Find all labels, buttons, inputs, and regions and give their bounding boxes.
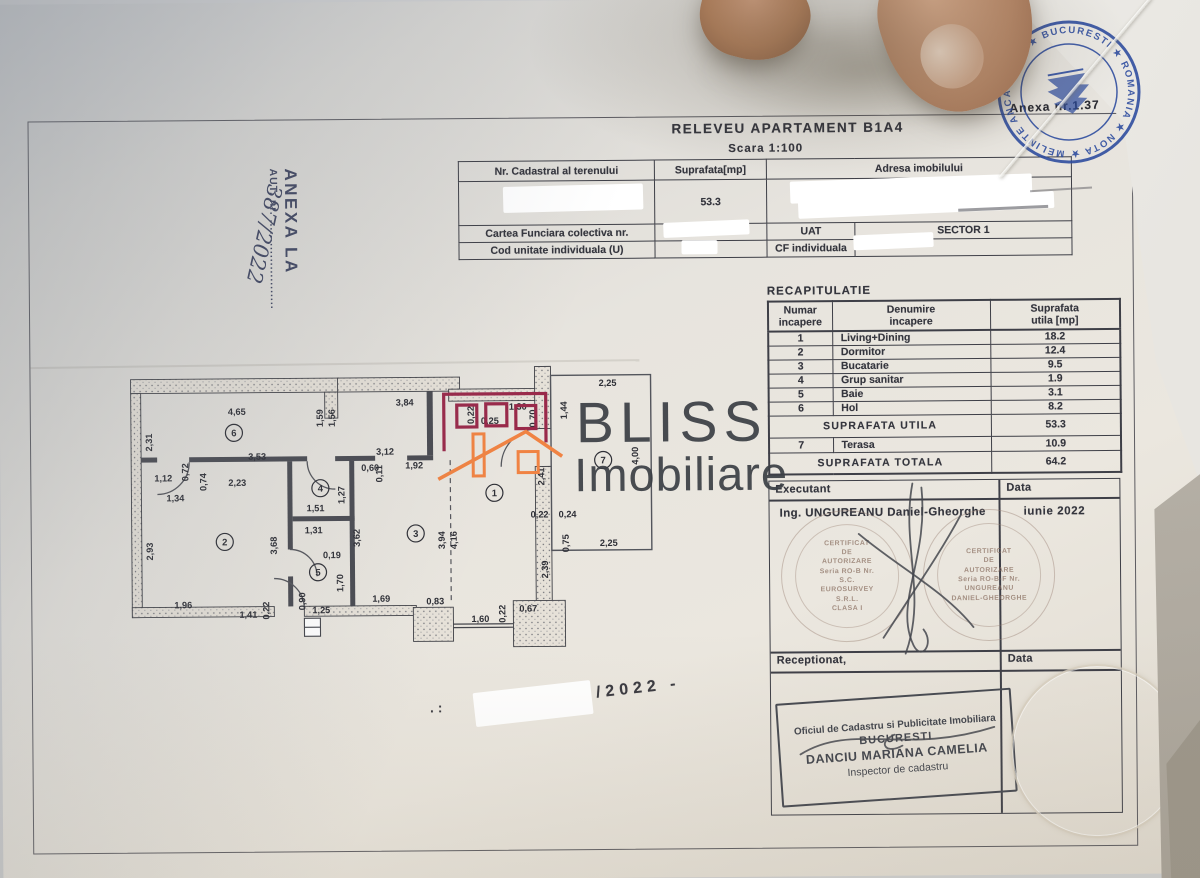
anexa-la-stamp: ANEXA LA AUT. nr. ......................… — [243, 168, 301, 358]
room-number: 5 — [315, 568, 321, 579]
logo-windows-icon — [444, 393, 546, 451]
dimension-label: 0,90 — [297, 592, 307, 610]
cod-unitate-label: Cod unitate individuala (U) — [459, 241, 655, 260]
room-number: 3 — [413, 529, 418, 540]
dimension-label: 1,34 — [166, 493, 185, 503]
dimension-label: 3,94 — [437, 530, 447, 549]
dimension-label: 1,27 — [336, 486, 346, 504]
dimension-label: 1,59 — [315, 409, 325, 427]
photo-scene: RELEVEU APARTAMENT B1A4 Scara 1:100 Nr. … — [0, 0, 1200, 878]
dimension-label: 1,56 — [327, 409, 337, 427]
uat-label: UAT — [767, 222, 855, 240]
dimension-label: 3,12 — [376, 447, 394, 457]
dimension-label: 2,39 — [540, 560, 550, 578]
dimension-label: 1,31 — [305, 525, 323, 535]
recap-header-denumire: Denumireincapere — [832, 300, 990, 331]
dimension-label: 3,68 — [269, 537, 279, 555]
window-lines — [453, 624, 513, 628]
logo-roof-icon — [438, 431, 562, 479]
terasa-value: 10.9 — [991, 435, 1121, 451]
logo-text-imobiliare: Imobiliare — [574, 447, 788, 502]
dimension-label: 0,67 — [519, 603, 537, 613]
dimension-label: 0,22 — [531, 509, 549, 519]
dimension-label: 1,51 — [307, 503, 325, 513]
bottom-note-dots: . : — [430, 701, 443, 716]
dimension-label: 1,70 — [335, 574, 345, 592]
cartea-funciara-label: Cartea Funciara colectiva nr. — [459, 224, 655, 243]
recap-header-suprafata: Suprafatautila [mp] — [990, 299, 1120, 330]
dimension-label: 0,72 — [180, 463, 190, 481]
room-number: 2 — [222, 537, 227, 548]
dimension-label: 0,24 — [559, 509, 578, 519]
shaft-box — [304, 618, 320, 636]
dimension-label: 2,31 — [144, 434, 154, 452]
interior-walls — [141, 391, 435, 607]
fingernail — [911, 14, 995, 99]
dimension-label: 3,53 — [248, 452, 266, 462]
cf-individuala-label: CF individuala — [767, 239, 855, 257]
dimension-label: 2,25 — [600, 538, 618, 548]
dimension-label: 1,92 — [405, 460, 423, 470]
recap-total-value: 64.2 — [991, 450, 1121, 473]
dimension-label: 2,93 — [145, 543, 155, 561]
dimension-label: 2,23 — [228, 478, 246, 488]
dimension-label: 1,96 — [174, 600, 192, 610]
recap-total-label: SUPRAFATA TOTALA — [769, 451, 991, 475]
dimension-label: 0,74 — [198, 472, 208, 491]
embossed-seal — [1010, 663, 1185, 838]
recap-header-numar: Numarincapere — [768, 301, 832, 332]
dimension-label: 1,41 — [239, 610, 257, 620]
recap-subtotal-label: SUPRAFATA UTILA — [769, 414, 991, 438]
dimension-label: 0,22 — [261, 602, 271, 620]
dimension-label: 1,60 — [471, 614, 489, 624]
dimension-label: 0,75 — [561, 534, 571, 552]
logo-text-bliss: BLISS — [576, 390, 768, 456]
dimension-label: 4,16 — [449, 531, 459, 549]
recap-subtotal-value: 53.3 — [991, 413, 1121, 436]
dimension-label: 0,19 — [323, 550, 341, 560]
terasa-name: Terasa — [833, 436, 991, 452]
dimension-label: 1,69 — [372, 594, 390, 604]
header-suprafata: Suprafata[mp] — [654, 159, 766, 180]
room-number: 6 — [231, 428, 236, 439]
dimension-label: 0,11 — [374, 465, 384, 482]
redaction-cod — [681, 240, 717, 254]
office-stamp-signature — [782, 697, 1013, 799]
suprafata-value: 53.3 — [654, 179, 766, 224]
dimension-label: 3,84 — [396, 397, 415, 407]
dimension-label: 1,12 — [154, 473, 172, 483]
header-nr-cadastral: Nr. Cadastral al terenului — [458, 160, 654, 182]
recap-table: Numarincapere Denumireincapere Suprafata… — [767, 298, 1122, 476]
dimension-label: 0,22 — [497, 605, 507, 623]
executant-signature — [762, 474, 1120, 677]
dimension-label: 3,62 — [352, 529, 362, 547]
dimension-label: 1,25 — [312, 605, 330, 615]
dimension-label: 0,83 — [426, 596, 444, 606]
room-number: 4 — [318, 484, 324, 495]
document-scale: Scara 1:100 — [616, 142, 916, 158]
redaction-cadastral — [503, 183, 644, 213]
recap-title: RECAPITULATIE — [767, 285, 871, 299]
dimension-label: 4,65 — [228, 407, 246, 417]
bliss-logo: BLISS Imobiliare — [438, 385, 784, 503]
